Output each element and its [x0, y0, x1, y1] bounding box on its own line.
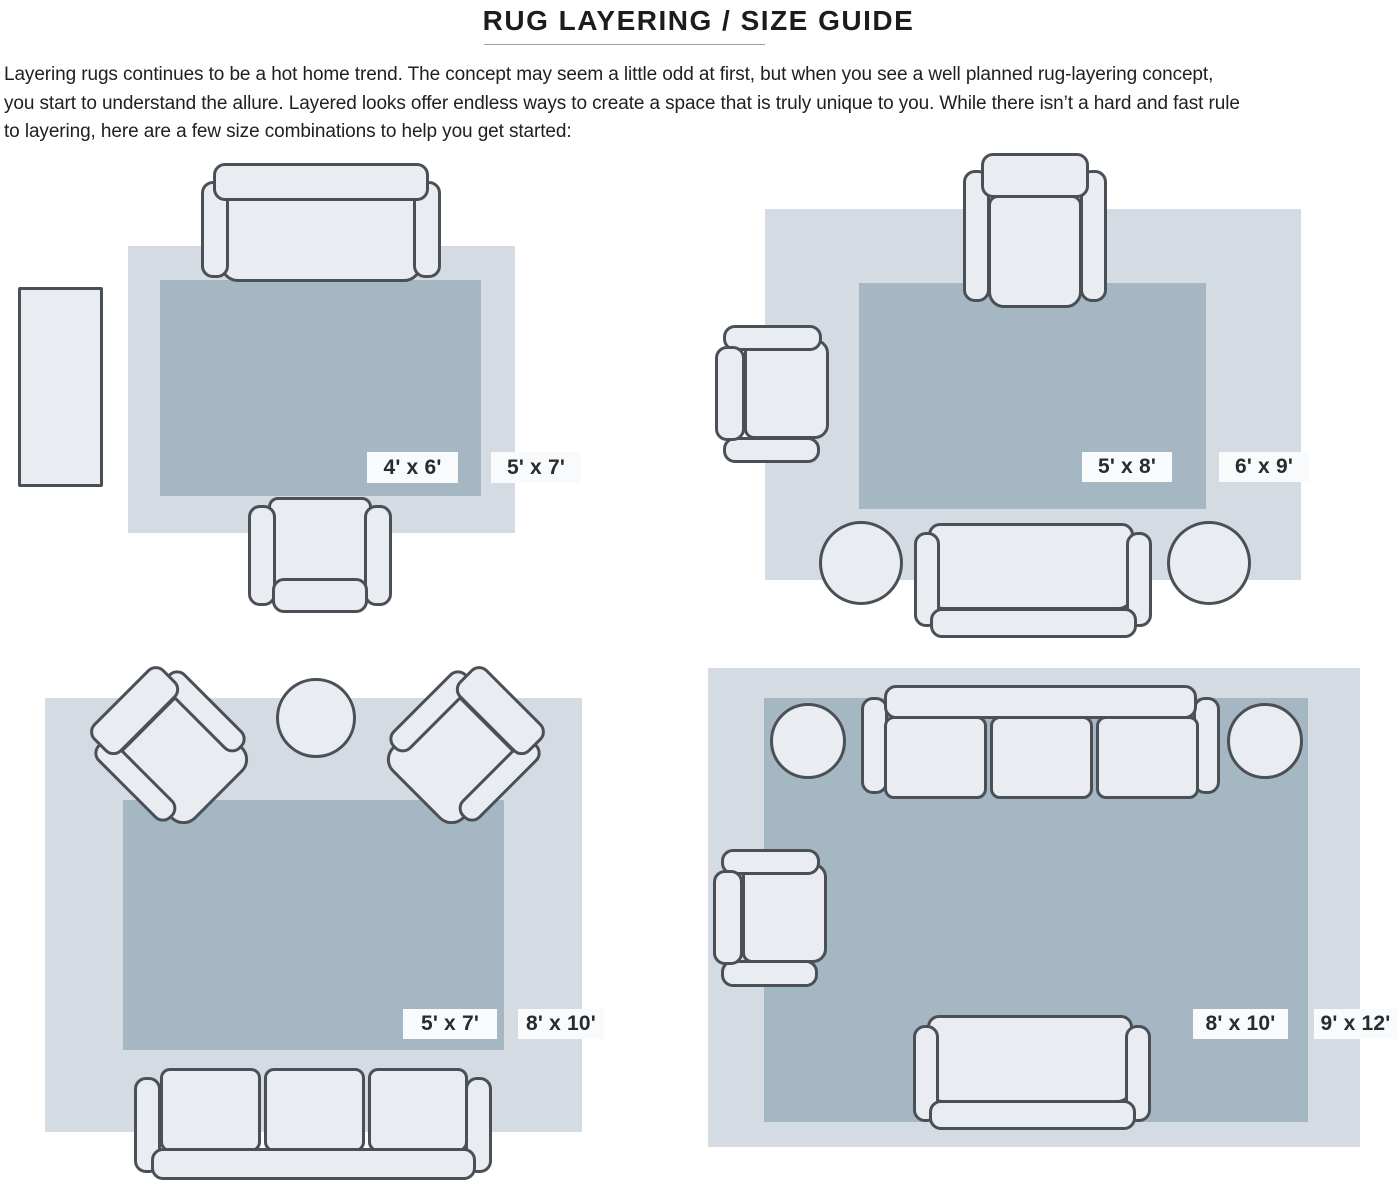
- armchair-seat: [988, 195, 1082, 308]
- armchair-arm-bottom: [723, 437, 820, 463]
- sofa-seat-cushion-2: [264, 1068, 365, 1152]
- intro-line-2: you start to understand the allure. Laye…: [4, 90, 1394, 119]
- outer-rug-size-text: 8' x 10': [526, 1012, 596, 1036]
- outer-rug-size-text: 9' x 12': [1321, 1012, 1391, 1036]
- inner-rug-size-label: 5' x 7': [403, 1009, 497, 1039]
- sofa-seat: [220, 196, 422, 282]
- rug-layering-size-guide: RUG LAYERING / SIZE GUIDE Layering rugs …: [0, 0, 1397, 1183]
- outer-rug-size-text: 6' x 9': [1235, 455, 1293, 479]
- armchair-back-cushion: [713, 870, 743, 965]
- sofa-seat: [928, 523, 1134, 610]
- page-title: RUG LAYERING / SIZE GUIDE: [0, 4, 1397, 38]
- sofa-seat-cushion-1: [160, 1068, 261, 1152]
- outer-rug-size-label: 5' x 7': [491, 452, 581, 483]
- armchair-seat: [742, 863, 827, 963]
- armchair-back-cushion: [272, 578, 368, 613]
- outer-rug-size-text: 5' x 7': [507, 456, 565, 480]
- sofa-seat-cushion-1: [884, 716, 987, 799]
- intro-paragraph: Layering rugs continues to be a hot home…: [4, 61, 1394, 147]
- round-table-top: [1167, 521, 1251, 605]
- sofa-seat: [927, 1015, 1133, 1103]
- intro-line-3: to layering, here are a few size combina…: [4, 118, 1394, 147]
- sofa-back-cushion: [930, 608, 1137, 638]
- armchair-seat: [268, 497, 372, 585]
- inner-rug-size-text: 4' x 6': [383, 456, 441, 480]
- inner-rug-size-label: 8' x 10': [1193, 1009, 1288, 1039]
- inner-rug-size-label: 5' x 8': [1082, 452, 1172, 482]
- round-table-top: [1227, 703, 1303, 779]
- armchair-back-cushion: [981, 153, 1089, 198]
- title-underline: [484, 44, 765, 45]
- side-table-top: [18, 287, 103, 487]
- outer-rug-size-label: 8' x 10': [518, 1009, 604, 1039]
- inner-rug-size-text: 8' x 10': [1206, 1012, 1276, 1036]
- sofa-back-cushion: [151, 1148, 476, 1180]
- round-table-top: [770, 703, 846, 779]
- sofa-back-cushion: [884, 685, 1197, 719]
- inner-rug-size-text: 5' x 7': [421, 1012, 479, 1036]
- round-table-top: [276, 678, 356, 758]
- inner-rug-size-text: 5' x 8': [1098, 455, 1156, 479]
- sofa-back-cushion: [929, 1100, 1136, 1130]
- round-table-top: [819, 521, 903, 605]
- armchair-seat: [744, 339, 829, 439]
- outer-rug-size-label: 6' x 9': [1219, 452, 1309, 482]
- sofa-back-cushion: [213, 163, 429, 201]
- intro-line-1: Layering rugs continues to be a hot home…: [4, 61, 1394, 90]
- armchair-back-cushion: [715, 346, 745, 441]
- sofa-seat-cushion-3: [368, 1068, 468, 1152]
- inner-rug-size-label: 4' x 6': [367, 452, 458, 483]
- sofa-seat-cushion-3: [1096, 716, 1199, 799]
- armchair-arm-right: [364, 505, 392, 606]
- outer-rug-size-label: 9' x 12': [1314, 1009, 1397, 1039]
- sofa-seat-cushion-2: [990, 716, 1093, 799]
